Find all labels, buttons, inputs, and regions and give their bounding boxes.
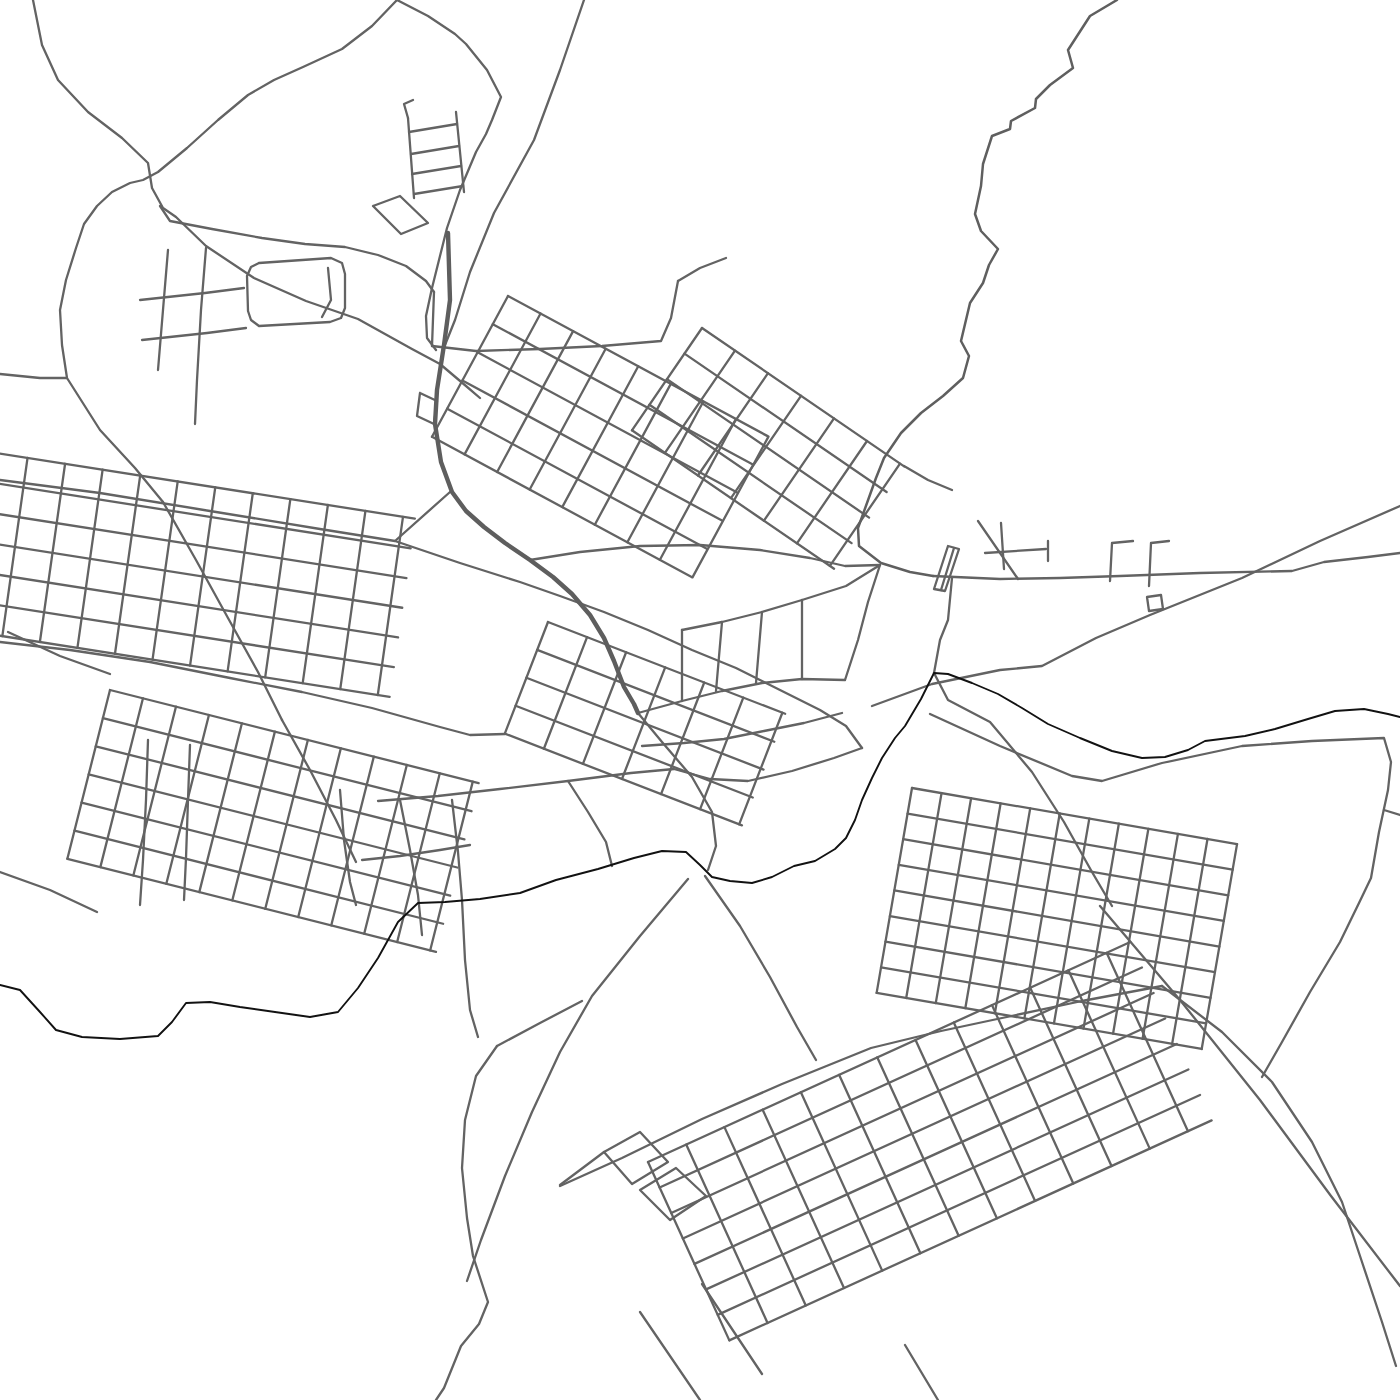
- grid-cross-street-north-cluster: [465, 314, 541, 455]
- grid-cross-street-north-cluster: [692, 437, 768, 578]
- grid-cross-street-southeast-cluster: [936, 798, 971, 1003]
- map-stage: [0, 0, 1400, 1400]
- road-segment: [195, 248, 206, 424]
- grid-street-northeast-cluster: [667, 379, 869, 517]
- grid-cross-street-south-cluster: [1030, 988, 1111, 1166]
- road-segment: [33, 0, 480, 398]
- road-segment: [412, 166, 461, 174]
- road-segment: [1001, 523, 1004, 569]
- roads-layer: [0, 0, 1400, 1400]
- road-segment: [432, 281, 678, 351]
- grid-street-southeast-cluster: [912, 788, 1237, 844]
- grid-cross-street-south-cluster: [954, 1023, 1035, 1201]
- grid-street-southwest-cluster: [110, 690, 479, 783]
- grid-cross-street-north-cluster: [660, 419, 736, 560]
- road-segment: [409, 124, 457, 132]
- road-segment: [467, 879, 688, 1281]
- road-segment: [411, 146, 459, 154]
- grid-cross-street-south-cluster: [992, 1005, 1073, 1183]
- grid-street-southwest-cluster: [96, 746, 465, 839]
- road-segment: [378, 748, 862, 801]
- road-segment: [985, 549, 1046, 553]
- grid-cross-street-south-cluster: [1107, 953, 1188, 1131]
- road-segment: [705, 876, 816, 1060]
- road-segment: [160, 206, 434, 292]
- grid-cross-street-south-cluster: [763, 1110, 844, 1288]
- grid-street-southeast-cluster: [908, 814, 1233, 870]
- stream-layer: [858, 0, 1117, 576]
- road-segment: [905, 1345, 938, 1400]
- road-segment: [1147, 595, 1163, 611]
- grid-cross-street-north-cluster: [595, 384, 671, 525]
- city-map: [0, 0, 1400, 1400]
- grid-cross-street-southeast-cluster: [877, 788, 912, 993]
- road-segment: [1149, 541, 1169, 586]
- road-segment: [934, 578, 952, 673]
- road-segment: [414, 186, 463, 194]
- road-segment: [568, 781, 612, 866]
- road-segment: [452, 800, 478, 1037]
- road-segment: [140, 288, 244, 300]
- road-segment: [716, 622, 722, 691]
- grid-street-northeast-cluster: [684, 354, 886, 492]
- grid-cross-street-south-cluster: [877, 1057, 958, 1235]
- grid-cross-street-southeast-cluster: [1202, 844, 1237, 1049]
- grid-cross-street-south-cluster: [648, 1162, 729, 1340]
- road-segment: [497, 1001, 582, 1046]
- grid-street-northeast-cluster: [702, 328, 904, 466]
- grid-street-south-cluster: [694, 1044, 1176, 1264]
- grid-cross-street-south-cluster: [686, 1145, 767, 1323]
- grid-cross-street-south-cluster: [724, 1127, 805, 1305]
- grid-street-south-cluster: [683, 1018, 1165, 1238]
- road-segment: [640, 1312, 700, 1400]
- road-segment: [408, 118, 414, 198]
- grid-cross-street-southeast-cluster: [906, 793, 941, 998]
- road-segment: [0, 374, 67, 378]
- grid-cross-street-north-cluster: [497, 331, 573, 472]
- road-segment: [0, 642, 505, 735]
- major-road-layer: [435, 233, 638, 713]
- road-segment: [158, 250, 168, 370]
- grid-cross-street-north-cluster: [530, 349, 606, 490]
- grid-street-west-cluster: [0, 630, 390, 697]
- road-segment: [373, 196, 428, 234]
- grid-cross-street-south-cluster: [916, 1040, 997, 1218]
- grid-cross-street-southeast-cluster: [995, 808, 1030, 1013]
- grid-street-southeast-cluster: [899, 865, 1224, 921]
- major-road: [435, 233, 638, 713]
- road-segment: [978, 521, 1018, 579]
- road-segment: [1162, 986, 1396, 1366]
- grid-street-southeast-cluster: [903, 839, 1228, 895]
- river-path: [0, 673, 1400, 1039]
- road-segment: [142, 328, 246, 340]
- grid-streets-layer: [0, 296, 1237, 1340]
- grid-street-west-cluster: [0, 541, 402, 608]
- grid-cross-street-southeast-cluster: [965, 803, 1000, 1008]
- road-segment: [0, 872, 97, 912]
- road-segment: [404, 100, 413, 118]
- road-segment: [756, 612, 762, 683]
- grid-street-southeast-cluster: [890, 916, 1215, 972]
- road-segment: [678, 258, 726, 281]
- road-segment: [445, 0, 584, 345]
- grid-street-southeast-cluster: [894, 890, 1219, 946]
- grid-cross-street-south-cluster: [801, 1092, 882, 1270]
- stream-path: [858, 0, 1117, 576]
- grid-cross-street-southeast-cluster: [1143, 834, 1178, 1039]
- road-segment: [904, 466, 952, 490]
- river-layer: [0, 673, 1400, 1039]
- road-segment: [1100, 906, 1400, 1286]
- grid-street-southeast-cluster: [885, 942, 1210, 998]
- grid-street-southeast-cluster: [877, 993, 1202, 1049]
- road-segment: [60, 0, 397, 502]
- road-segment: [682, 565, 880, 630]
- grid-cross-street-north-cluster: [562, 366, 638, 507]
- road-segment: [432, 292, 434, 346]
- road-segment: [1384, 810, 1400, 815]
- grid-cross-street-south-cluster: [839, 1075, 920, 1253]
